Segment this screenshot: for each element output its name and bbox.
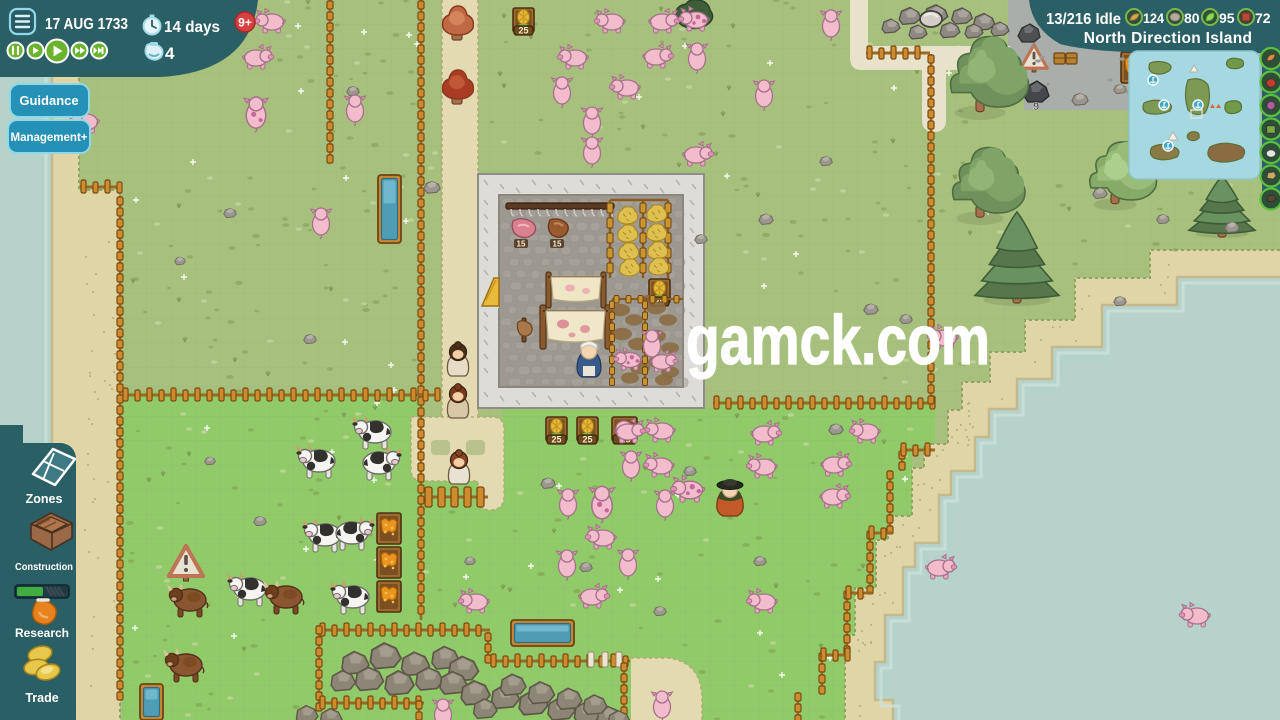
svg-text:124: 124: [1143, 10, 1164, 26]
svg-text:13/216 Idle: 13/216 Idle: [1046, 11, 1121, 28]
svg-text:95: 95: [1219, 10, 1235, 26]
svg-text:72: 72: [1255, 10, 1271, 26]
svg-text:9: 9: [1033, 101, 1039, 113]
svg-text:25: 25: [551, 435, 561, 445]
svg-text:Research: Research: [15, 626, 69, 640]
svg-text:Management+: Management+: [10, 132, 87, 144]
svg-text:Construction: Construction: [15, 561, 73, 573]
svg-text:4: 4: [165, 44, 175, 63]
svg-text:Trade: Trade: [25, 691, 58, 705]
svg-text:15: 15: [517, 240, 526, 249]
svg-text:17 AUG 1733: 17 AUG 1733: [45, 16, 128, 33]
svg-text:80: 80: [1184, 10, 1200, 26]
svg-text:14 days: 14 days: [164, 19, 220, 36]
svg-text:25: 25: [582, 435, 592, 445]
svg-text:25: 25: [518, 26, 528, 36]
svg-text:15: 15: [553, 240, 562, 249]
svg-text:Guidance: Guidance: [19, 93, 78, 108]
svg-text:gamck.com: gamck.com: [686, 301, 990, 379]
svg-text:9+: 9+: [238, 16, 252, 30]
svg-text:Zones: Zones: [26, 492, 63, 506]
svg-text:North Direction Island: North Direction Island: [1084, 30, 1253, 47]
